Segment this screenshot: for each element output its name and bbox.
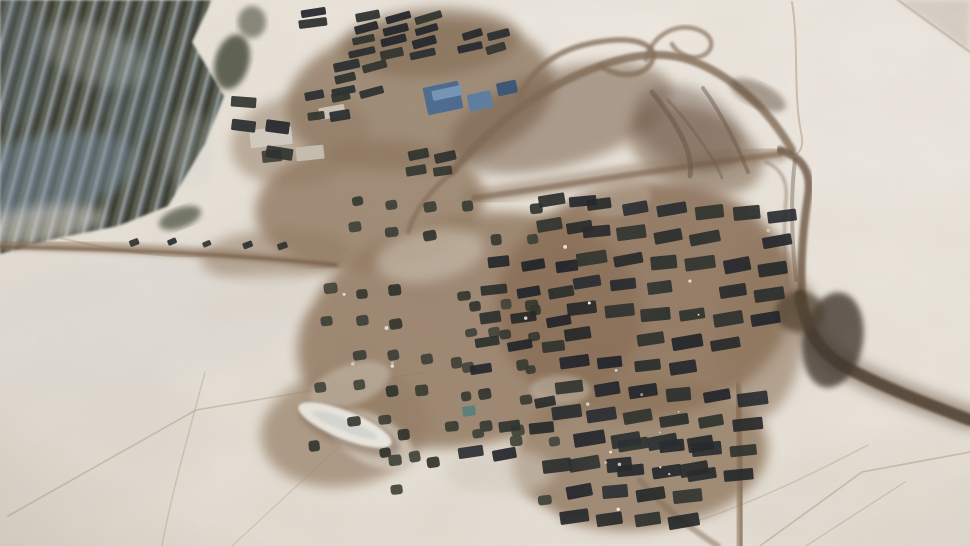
vignette	[0, 0, 970, 546]
satellite-image	[0, 0, 970, 546]
satellite-scene-canvas	[0, 0, 970, 546]
